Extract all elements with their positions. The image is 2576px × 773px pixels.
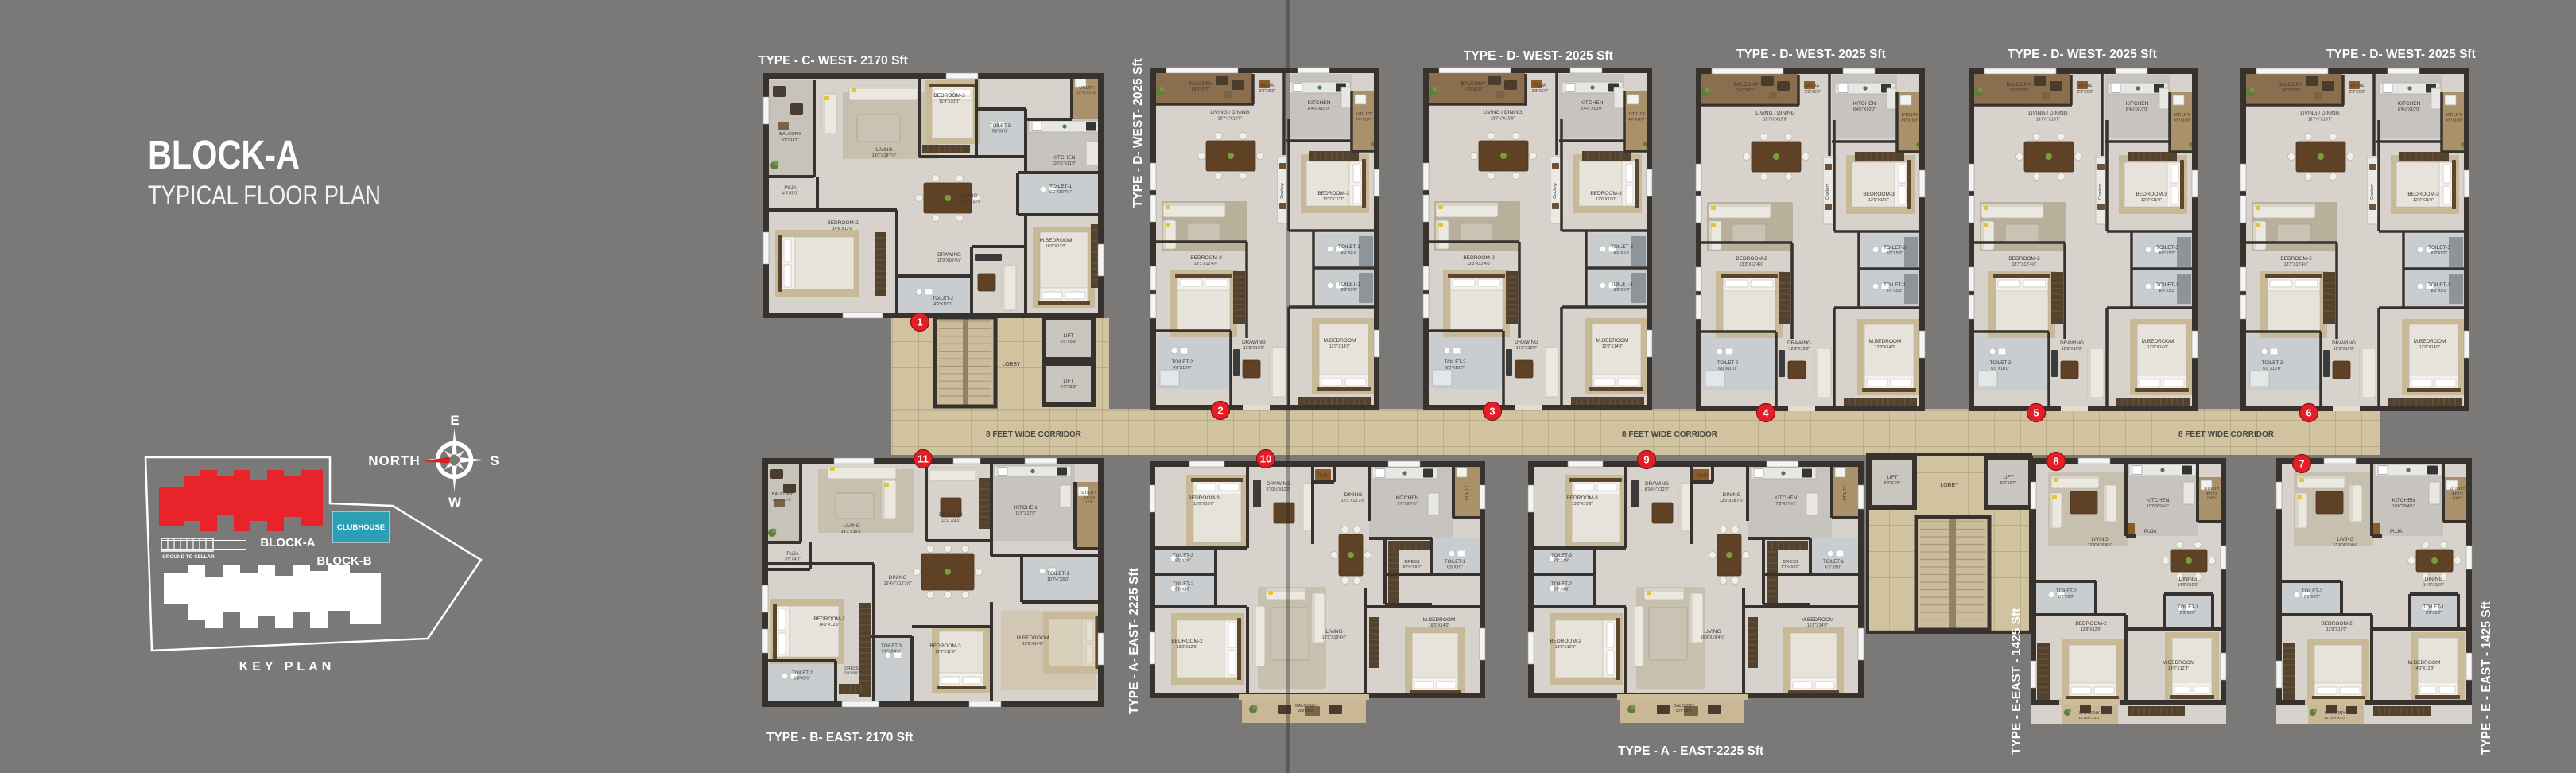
svg-text:2: 2 xyxy=(1217,405,1223,417)
svg-text:DINING: DINING xyxy=(889,575,907,581)
svg-text:5'7½"X6'0": 5'7½"X6'0" xyxy=(1402,564,1421,569)
svg-text:4'9"X5'0": 4'9"X5'0" xyxy=(782,192,798,196)
svg-text:BLOCK-A: BLOCK-A xyxy=(260,536,315,550)
svg-text:M.BEDROOM: M.BEDROOM xyxy=(1017,635,1049,641)
svg-text:BEDROOM-2: BEDROOM-2 xyxy=(1171,639,1203,644)
svg-text:8 FEET WIDE CORRIDOR: 8 FEET WIDE CORRIDOR xyxy=(2178,430,2275,439)
svg-text:10'7½"X11'0": 10'7½"X11'0" xyxy=(1052,161,1077,166)
svg-text:5'0"X8'4½": 5'0"X8'4½" xyxy=(882,649,901,655)
svg-text:4'4½"X: 4'4½"X xyxy=(1084,495,1096,499)
svg-text:E: E xyxy=(450,413,459,428)
svg-text:12'0"X18'7½": 12'0"X18'7½" xyxy=(1341,498,1366,503)
svg-text:4: 4 xyxy=(1763,407,1769,419)
svg-text:8'0"X4'6": 8'0"X4'6" xyxy=(1554,588,1569,592)
svg-text:LIVING: LIVING xyxy=(875,147,892,153)
svg-text:LOBBY: LOBBY xyxy=(1002,362,1021,367)
svg-text:LIFT: LIFT xyxy=(1063,333,1073,339)
svg-text:LOBBY: LOBBY xyxy=(1940,483,1959,488)
svg-text:M.BEDROOM: M.BEDROOM xyxy=(1423,617,1456,623)
svg-text:BEDROOM-2: BEDROOM-2 xyxy=(1550,639,1581,644)
svg-text:TOILET-2: TOILET-2 xyxy=(792,671,813,676)
svg-text:KITCHEN: KITCHEN xyxy=(1775,495,1798,501)
svg-text:11'6"X12'9": 11'6"X12'9" xyxy=(1015,511,1036,516)
svg-text:5'0"X8'0": 5'0"X8'0" xyxy=(992,130,1008,134)
svg-text:W: W xyxy=(448,495,462,510)
svg-text:16'4½"X12'1½": 16'4½"X12'1½" xyxy=(883,581,911,586)
svg-text:16'0"X14'0": 16'0"X14'0" xyxy=(1807,623,1829,628)
svg-text:14'6"X13'0": 14'6"X13'0" xyxy=(832,227,854,231)
svg-text:14'3"X15'3": 14'3"X15'3" xyxy=(841,530,863,534)
svg-text:10'7½"X6'0": 10'7½"X6'0" xyxy=(1047,577,1069,582)
svg-text:KEY PLAN: KEY PLAN xyxy=(239,660,336,674)
svg-text:14'0"X12'0": 14'0"X12'0" xyxy=(819,623,840,627)
svg-text:TYPE - D- WEST- 2025 Sft: TYPE - D- WEST- 2025 Sft xyxy=(1736,48,1886,61)
svg-text:10: 10 xyxy=(1260,453,1271,465)
svg-text:11'0"X11'9": 11'0"X11'9" xyxy=(935,650,956,655)
svg-text:13'0"X10'6": 13'0"X10'6" xyxy=(1572,502,1593,507)
svg-text:8'10½"X12'0": 8'10½"X12'0" xyxy=(1645,487,1670,492)
svg-text:6'0"X9'0": 6'0"X9'0" xyxy=(1447,565,1463,570)
svg-text:M.BEDROOM: M.BEDROOM xyxy=(1802,617,1834,623)
svg-text:16'10½"X12'9": 16'10½"X12'9" xyxy=(955,199,982,204)
svg-text:5'0"X11'7½": 5'0"X11'7½" xyxy=(773,497,793,502)
svg-text:PUJA: PUJA xyxy=(786,552,798,557)
svg-text:KITCHEN: KITCHEN xyxy=(1014,505,1038,511)
svg-text:8 FEET WIDE CORRIDOR: 8 FEET WIDE CORRIDOR xyxy=(986,430,1082,439)
svg-text:DRAWING: DRAWING xyxy=(1645,481,1669,487)
svg-text:LIVING: LIVING xyxy=(1704,629,1721,635)
svg-text:PUJA: PUJA xyxy=(1696,474,1708,479)
svg-text:S: S xyxy=(490,453,499,468)
svg-text:11'9"X10'0": 11'9"X10'0" xyxy=(939,99,960,104)
svg-text:TYPE - B- EAST- 2170 Sft: TYPE - B- EAST- 2170 Sft xyxy=(766,731,913,744)
svg-text:6'0"X3'6": 6'0"X3'6" xyxy=(1884,481,1901,486)
svg-text:TOILET-1: TOILET-1 xyxy=(1445,560,1466,565)
svg-text:GROUND TO CELLAR: GROUND TO CELLAR xyxy=(162,554,215,560)
svg-text:BEDROOM-3: BEDROOM-3 xyxy=(1188,495,1220,501)
svg-text:16'9"X19'4½": 16'9"X19'4½" xyxy=(1701,635,1725,640)
svg-text:TYPE - A - EAST-2225 Sft: TYPE - A - EAST-2225 Sft xyxy=(1618,744,1763,758)
svg-text:7'6"X9'7½": 7'6"X9'7½" xyxy=(1398,501,1418,507)
svg-text:NORTH: NORTH xyxy=(368,453,420,468)
svg-text:6'0"X9'0": 6'0"X9'0" xyxy=(1825,565,1841,570)
svg-text:6'0"X6'0": 6'0"X6'0" xyxy=(2000,481,2017,486)
svg-text:8 FEET WIDE CORRIDOR: 8 FEET WIDE CORRIDOR xyxy=(1622,430,1718,439)
svg-text:BEDROOM-2: BEDROOM-2 xyxy=(813,616,845,622)
svg-text:DRESS: DRESS xyxy=(1783,560,1798,565)
svg-text:DRAWING: DRAWING xyxy=(937,252,961,258)
svg-text:3: 3 xyxy=(1489,406,1495,418)
svg-text:7'6"X9'7½": 7'6"X9'7½" xyxy=(1776,501,1796,507)
svg-text:BEDROOM-2: BEDROOM-2 xyxy=(827,220,859,226)
svg-text:10'7½"X4'1½": 10'7½"X4'1½" xyxy=(1077,91,1097,95)
svg-text:11'9"X10'4½": 11'9"X10'4½" xyxy=(937,258,962,263)
svg-text:16'9"X5'6": 16'9"X5'6" xyxy=(1676,709,1693,713)
svg-text:DINING: DINING xyxy=(1723,492,1741,498)
svg-text:UTILITY: UTILITY xyxy=(1843,485,1848,501)
svg-text:DINING: DINING xyxy=(960,193,978,199)
svg-text:12'0"X9'3": 12'0"X9'3" xyxy=(941,519,960,523)
svg-text:16'0"X14'0": 16'0"X14'0" xyxy=(1429,623,1450,628)
svg-text:KITCHEN: KITCHEN xyxy=(1053,155,1076,161)
svg-text:PUJA: PUJA xyxy=(784,186,796,191)
svg-text:5'0"X8'0": 5'0"X8'0" xyxy=(844,671,859,675)
svg-text:16'9"X5'6": 16'9"X5'6" xyxy=(1298,709,1314,713)
svg-text:LIVING: LIVING xyxy=(1325,629,1342,635)
svg-text:13'0"X18'7½": 13'0"X18'7½" xyxy=(872,153,897,158)
svg-text:TYPE - E-EAST - 1425 Sft: TYPE - E-EAST - 1425 Sft xyxy=(2010,608,2023,755)
svg-text:TOILET-3: TOILET-3 xyxy=(1173,554,1194,558)
svg-text:TOILET-2: TOILET-2 xyxy=(933,296,954,301)
svg-text:3'9"X4'0": 3'9"X4'0" xyxy=(785,557,801,562)
svg-text:BEDROOM-3: BEDROOM-3 xyxy=(1566,495,1598,501)
svg-text:M.BEDROOM: M.BEDROOM xyxy=(1040,238,1073,243)
svg-text:TOILET-1: TOILET-1 xyxy=(1047,571,1069,577)
svg-text:1: 1 xyxy=(917,317,922,328)
svg-text:16'9"X19'4½": 16'9"X19'4½" xyxy=(1322,635,1347,640)
svg-text:TOILET-2: TOILET-2 xyxy=(1551,582,1573,587)
svg-text:16'0"X12'0": 16'0"X12'0" xyxy=(1046,244,1067,249)
svg-text:TYPICAL FLOOR PLAN: TYPICAL FLOOR PLAN xyxy=(148,181,381,211)
svg-text:DRESS: DRESS xyxy=(1404,560,1420,565)
svg-text:TOILET-1: TOILET-1 xyxy=(1049,184,1072,189)
svg-text:BEDROOM-3: BEDROOM-3 xyxy=(933,93,965,99)
svg-text:TYPE - E - EAST - 1425 Sft: TYPE - E - EAST - 1425 Sft xyxy=(2480,601,2493,755)
svg-text:4'9"X10'0": 4'9"X10'0" xyxy=(933,302,952,307)
svg-text:6'0"X5'9": 6'0"X5'9" xyxy=(1061,340,1077,344)
svg-text:UTILITY: UTILITY xyxy=(1465,485,1469,501)
svg-text:5'7½"X6'0": 5'7½"X6'0" xyxy=(1781,564,1799,569)
svg-text:KITCHEN: KITCHEN xyxy=(1396,495,1419,501)
svg-text:12'9": 12'9" xyxy=(1085,500,1094,504)
svg-text:BALCONY: BALCONY xyxy=(779,132,801,137)
svg-text:TYPE - D- WEST- 2025 Sft: TYPE - D- WEST- 2025 Sft xyxy=(1464,49,1613,63)
svg-text:TYPE - A- EAST- 2225 Sft: TYPE - A- EAST- 2225 Sft xyxy=(1127,568,1141,714)
svg-text:LIFT: LIFT xyxy=(1887,475,1897,480)
svg-text:LIFT: LIFT xyxy=(1063,379,1073,384)
svg-text:8'0"X5'6": 8'0"X5'6" xyxy=(794,677,810,682)
svg-text:12'0"X18'7½": 12'0"X18'7½" xyxy=(1720,498,1744,503)
svg-text:DINING: DINING xyxy=(1344,492,1363,498)
svg-text:6'0"X5'9": 6'0"X5'9" xyxy=(1061,385,1077,390)
svg-text:TYPE - D- WEST- 2025 Sft: TYPE - D- WEST- 2025 Sft xyxy=(2008,48,2157,61)
svg-text:8'0"X4'6": 8'0"X4'6" xyxy=(1554,559,1569,564)
svg-text:DRAWING: DRAWING xyxy=(939,512,963,518)
svg-text:LIVING: LIVING xyxy=(843,523,859,529)
svg-text:13'0"X12'9": 13'0"X12'9" xyxy=(1555,645,1577,650)
svg-text:11: 11 xyxy=(918,453,929,465)
svg-text:TOILET-2: TOILET-2 xyxy=(1173,582,1194,587)
svg-text:6'0"X10'7½": 6'0"X10'7½" xyxy=(1049,189,1072,195)
svg-text:TYPE - C- WEST- 2170 Sft: TYPE - C- WEST- 2170 Sft xyxy=(758,54,908,68)
svg-text:BEDROOM-3: BEDROOM-3 xyxy=(929,643,961,649)
svg-text:13'0"X10'6": 13'0"X10'6" xyxy=(1193,502,1215,507)
svg-text:TYPE - D- WEST- 2025 Sft: TYPE - D- WEST- 2025 Sft xyxy=(1131,58,1145,208)
svg-text:13'0"X12'9": 13'0"X12'9" xyxy=(1177,645,1198,650)
svg-text:TOILET-3: TOILET-3 xyxy=(881,644,902,649)
svg-text:7: 7 xyxy=(2299,458,2304,470)
svg-text:15'6"X14'0": 15'6"X14'0" xyxy=(1022,642,1044,647)
svg-text:CLUBHOUSE: CLUBHOUSE xyxy=(337,523,385,532)
svg-text:8'0"X4'6": 8'0"X4'6" xyxy=(1175,559,1191,564)
svg-text:TOILET-3: TOILET-3 xyxy=(990,124,1011,129)
svg-text:5: 5 xyxy=(2033,407,2039,419)
svg-text:8'0"X4'6": 8'0"X4'6" xyxy=(1175,588,1191,592)
svg-text:TOILET-3: TOILET-3 xyxy=(1551,554,1573,558)
svg-text:6: 6 xyxy=(2306,407,2311,419)
svg-text:8: 8 xyxy=(2053,456,2058,468)
svg-text:TYPE - D- WEST- 2025 Sft: TYPE - D- WEST- 2025 Sft xyxy=(2326,48,2476,61)
svg-text:BLOCK-B: BLOCK-B xyxy=(316,554,371,568)
svg-text:9: 9 xyxy=(1643,454,1649,466)
svg-text:BALCONY: BALCONY xyxy=(772,492,793,497)
svg-text:BLOCK-A: BLOCK-A xyxy=(148,132,300,177)
svg-text:TOILET-1: TOILET-1 xyxy=(1823,560,1845,565)
svg-text:6'0"X14'0": 6'0"X14'0" xyxy=(782,138,799,142)
svg-text:PUJA: PUJA xyxy=(1317,474,1329,479)
svg-text:LIFT: LIFT xyxy=(2003,475,2013,480)
